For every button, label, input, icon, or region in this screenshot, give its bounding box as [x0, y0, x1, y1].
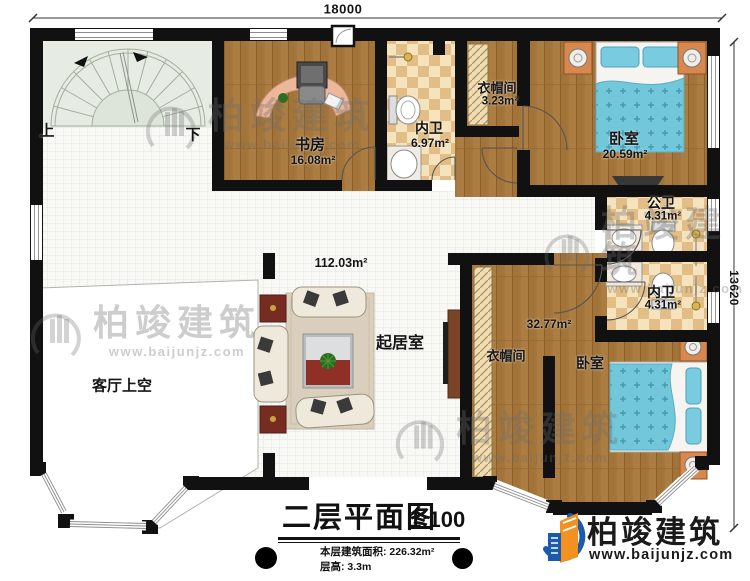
- room-label-closet-top: 衣帽间: [477, 82, 516, 95]
- room-label-living: 起居室: [376, 336, 424, 352]
- room-area-study: 16.08m²: [291, 154, 336, 166]
- room-label-void: 客厅上空: [92, 379, 152, 394]
- stair-down-label: 下: [185, 128, 200, 143]
- room-label-public-bath: 公卫: [647, 196, 675, 210]
- floorplan-canvas: 柏竣建筑 www.baijunjz.com 柏竣建筑 www.baijunjz.…: [0, 0, 750, 581]
- floor-plan-drawing: [0, 0, 750, 581]
- room-area-bedroom-bottom: 32.77m²: [527, 318, 572, 330]
- room-area-closet-top: 3.23m²: [482, 96, 518, 108]
- room-area-public-bath: 4.31m²: [645, 211, 681, 223]
- sofa-set-icon: [254, 287, 375, 433]
- floor-area-label: 本层建筑面积:: [320, 546, 387, 558]
- title-underline: [278, 537, 460, 540]
- floor-area-line: 本层建筑面积: 226.32m²: [320, 547, 434, 558]
- floor-height-value: 3.3m: [347, 561, 371, 573]
- floor-height-line: 层高: 3.3m: [320, 562, 371, 573]
- company-name: 柏竣建筑: [587, 507, 723, 552]
- room-label-bedroom-top: 卧室: [609, 132, 639, 147]
- room-area-bedroom-top: 20.59m²: [603, 148, 648, 160]
- floor-area-value: 226.32m²: [389, 546, 434, 558]
- dimension-top: 18000: [324, 3, 363, 16]
- room-label-bedroom-bottom: 卧室: [576, 356, 604, 370]
- room-label-ensuite-right: 内卫: [647, 285, 675, 299]
- room-label-study: 书房: [295, 138, 325, 153]
- title-underline-thin: [278, 542, 460, 543]
- title-dot-left: [255, 547, 277, 569]
- dimension-right: 13620: [728, 270, 740, 306]
- room-area-ensuite-right: 4.31m²: [645, 300, 681, 312]
- company-website: www.baijunjz.com: [589, 547, 733, 563]
- company-logo-icon: [536, 509, 590, 571]
- room-area-ensuite-top: 6.97m²: [411, 137, 449, 149]
- plan-scale: 1:100: [409, 509, 465, 531]
- room-area-living: 112.03m²: [315, 257, 368, 270]
- room-label-ensuite-top: 内卫: [415, 121, 443, 135]
- stair-up-label: 上: [39, 124, 54, 139]
- title-dot-right: [452, 548, 473, 569]
- floor-height-label: 层高:: [320, 561, 345, 573]
- room-label-closet-bottom: 衣帽间: [486, 350, 525, 363]
